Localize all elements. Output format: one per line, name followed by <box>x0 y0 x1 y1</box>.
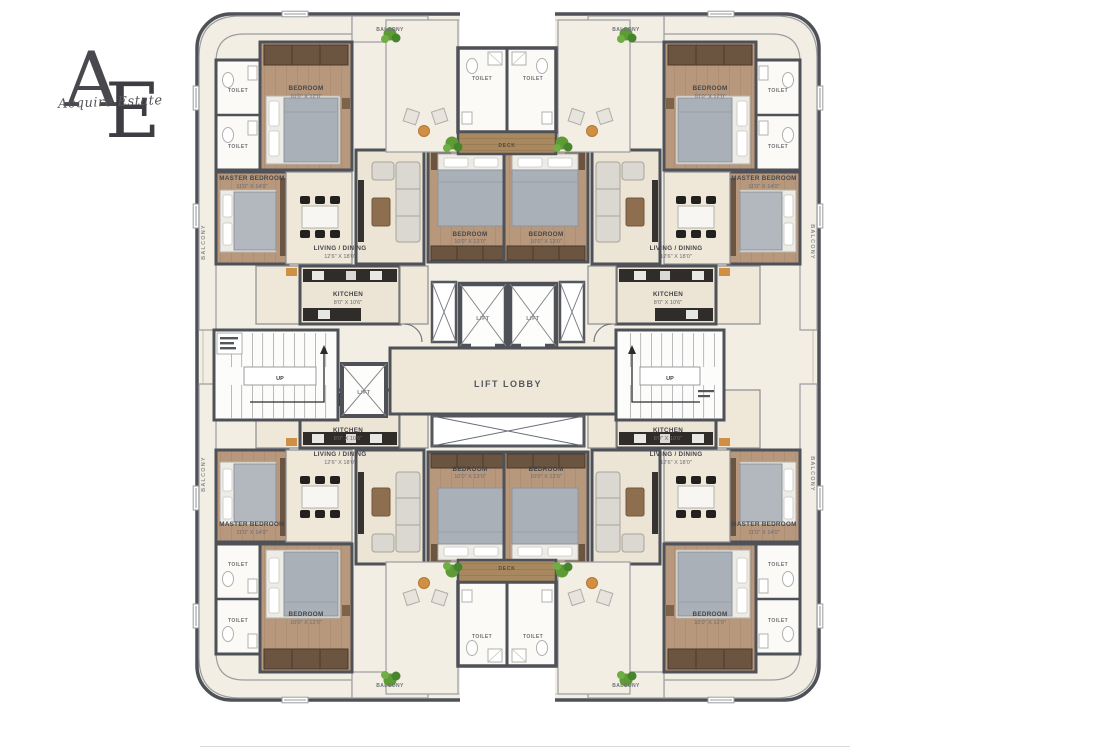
label-deck: DECK <box>498 143 515 149</box>
label-toilet: TOILET <box>472 634 492 640</box>
bed <box>438 154 504 226</box>
page-rule <box>200 746 850 747</box>
label-master-bedroom: MASTER BEDROOM <box>731 521 796 528</box>
label-master-bedroom-dim: 11'0" X 14'0" <box>236 184 267 190</box>
label-lift: LIFT <box>526 316 540 322</box>
wardrobe <box>264 45 348 65</box>
label-stairs-up: UP <box>276 376 284 382</box>
label-kitchen: KITCHEN <box>653 291 683 298</box>
label-living-dining: LIVING / DINING <box>650 245 703 252</box>
floor-plan-page: A E Acquire Estate <box>0 0 1100 750</box>
label-toilet: TOILET <box>768 562 788 568</box>
label-kitchen-dim: 8'0" X 10'6" <box>334 300 363 306</box>
label-kitchen-dim: 8'0" X 10'6" <box>654 436 683 442</box>
label-toilet: TOILET <box>228 144 248 150</box>
toilet-block <box>216 60 260 170</box>
label-bedroom-dim: 10'0" X 12'0" <box>694 620 726 626</box>
label-master-bedroom-dim: 11'0" X 14'0" <box>236 530 267 536</box>
label-bedroom2-dim: 10'0" X 13'0" <box>530 474 562 480</box>
label-kitchen-dim: 8'0" X 10'6" <box>334 436 363 442</box>
label-bedroom2: BEDROOM <box>529 466 564 473</box>
label-deck: DECK <box>498 566 515 572</box>
label-toilet: TOILET <box>523 634 543 640</box>
label-bedroom: BEDROOM <box>693 611 728 618</box>
label-bedroom-dim: 10'0" X 12'0" <box>290 94 322 100</box>
label-bedroom2: BEDROOM <box>453 231 488 238</box>
label-lift: LIFT <box>357 390 371 396</box>
label-toilet: TOILET <box>768 144 788 150</box>
stool <box>286 268 297 276</box>
label-toilet: TOILET <box>768 618 788 624</box>
dining-table <box>302 206 338 228</box>
label-kitchen-dim: 8'0" X 10'6" <box>654 300 683 306</box>
label-living-dining-dim: 12'6" X 18'0" <box>324 460 356 466</box>
bottom-notch <box>460 668 555 706</box>
label-bedroom: BEDROOM <box>289 611 324 618</box>
top-notch <box>460 8 555 46</box>
label-living-dining-dim: 12'6" X 18'0" <box>660 254 692 260</box>
label-bedroom2-dim: 10'0" X 13'0" <box>454 239 486 245</box>
label-bedroom: BEDROOM <box>289 85 324 92</box>
bed <box>266 96 340 164</box>
corner-bedroom <box>260 42 352 170</box>
label-toilet: TOILET <box>523 76 543 82</box>
staircase-right <box>616 330 724 420</box>
label-bedroom2: BEDROOM <box>453 466 488 473</box>
label-balcony: BALCONY <box>376 27 404 33</box>
label-toilet: TOILET <box>768 88 788 94</box>
label-living-dining: LIVING / DINING <box>314 451 367 458</box>
bed <box>220 190 276 252</box>
label-bedroom-dim: 10'0" X 12'0" <box>694 94 726 100</box>
stair-treads <box>622 333 718 367</box>
label-lift: LIFT <box>476 316 490 322</box>
wardrobe <box>280 178 286 256</box>
label-balcony-vertical: BALCONY <box>809 456 815 492</box>
label-balcony-vertical: BALCONY <box>201 224 207 260</box>
inner-bedroom <box>428 150 512 262</box>
nightstand <box>342 98 350 109</box>
label-balcony: BALCONY <box>612 683 640 689</box>
label-toilet: TOILET <box>228 88 248 94</box>
label-kitchen: KITCHEN <box>653 427 683 434</box>
label-living-dining-dim: 12'6" X 18'0" <box>324 254 356 260</box>
label-toilet: TOILET <box>472 76 492 82</box>
label-living-dining: LIVING / DINING <box>650 451 703 458</box>
label-bedroom2: BEDROOM <box>529 231 564 238</box>
label-balcony: BALCONY <box>612 27 640 33</box>
label-master-bedroom-dim: 11'0" X 14'0" <box>748 530 779 536</box>
stair-treads <box>226 333 336 367</box>
staircase-left <box>214 330 338 420</box>
label-kitchen: KITCHEN <box>333 291 363 298</box>
coffee-table <box>372 198 390 226</box>
wardrobe <box>431 246 509 260</box>
label-living-dining-dim: 12'6" X 18'0" <box>660 460 692 466</box>
label-balcony: BALCONY <box>376 683 404 689</box>
label-bedroom-dim: 10'0" X 12'0" <box>290 620 322 626</box>
label-toilet: TOILET <box>228 562 248 568</box>
label-kitchen: KITCHEN <box>333 427 363 434</box>
label-bedroom2-dim: 10'0" X 13'0" <box>530 239 562 245</box>
label-balcony-vertical: BALCONY <box>809 224 815 260</box>
label-toilet: TOILET <box>228 618 248 624</box>
label-master-bedroom-dim: 11'0" X 14'0" <box>748 184 779 190</box>
label-master-bedroom: MASTER BEDROOM <box>219 175 284 182</box>
floor-plan-drawing: LIFT LOBBY LIFT LIFT LIFT DECK DECK TOIL… <box>0 0 1100 750</box>
label-stairs-up: UP <box>666 376 674 382</box>
label-bedroom: BEDROOM <box>693 85 728 92</box>
label-balcony-vertical: BALCONY <box>201 456 207 492</box>
label-master-bedroom: MASTER BEDROOM <box>219 521 284 528</box>
cutout-void <box>432 416 584 446</box>
common-toilets <box>458 48 556 132</box>
label-lift-lobby: LIFT LOBBY <box>474 379 542 389</box>
tv-unit <box>358 180 364 242</box>
label-master-bedroom: MASTER BEDROOM <box>731 175 796 182</box>
label-bedroom2-dim: 10'0" X 13'0" <box>454 474 486 480</box>
label-living-dining: LIVING / DINING <box>314 245 367 252</box>
passage <box>400 266 428 324</box>
